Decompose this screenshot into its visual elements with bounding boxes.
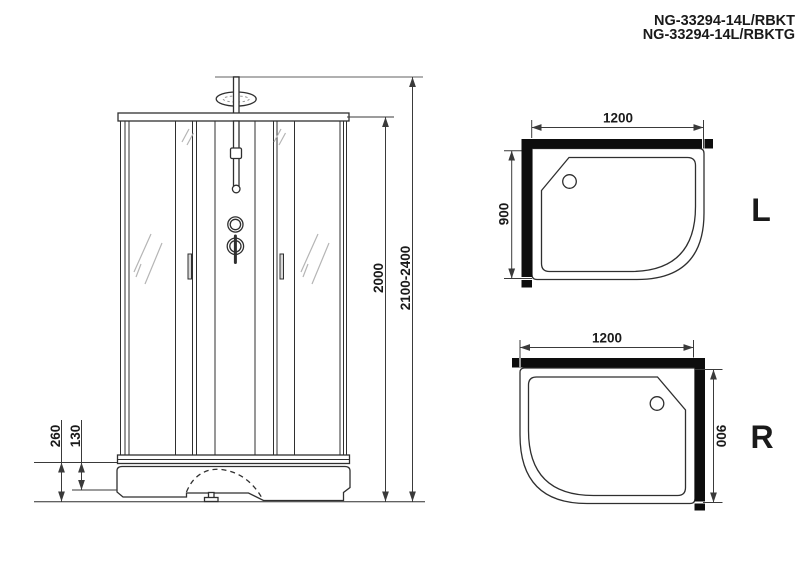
technical-drawing-page: NG-33294-14L/RBKT NG-33294-14L/RBKTG (0, 0, 800, 566)
cabin-bottom-frame (118, 455, 350, 464)
cabin-top-frame (118, 113, 349, 121)
mixer-lever-icon (227, 236, 243, 263)
drain-foot-icon (205, 493, 219, 502)
dim-base-height: 260 (48, 425, 63, 448)
shower-head-icon (216, 77, 256, 114)
tray-inner-r (529, 377, 686, 496)
tray-inner-l (542, 158, 696, 272)
drain-icon-l (563, 175, 577, 189)
door-handle-left (188, 254, 192, 279)
shower-cabin-drawing: NG-33294-14L/RBKT NG-33294-14L/RBKTG (0, 0, 800, 566)
front-view (34, 77, 425, 502)
view-label-r: R (750, 419, 773, 455)
dim-depth-r: 900 (714, 425, 729, 448)
title-block: NG-33294-14L/RBKT NG-33294-14L/RBKTG (643, 13, 795, 43)
mixer-knob-icon (228, 217, 243, 232)
dim-width-l: 1200 (603, 111, 633, 126)
top-view-l: 1200 900 L (497, 111, 771, 288)
view-label-l: L (751, 192, 771, 228)
front-view-dimensions: 2000 2100-2400 260 130 (34, 77, 413, 502)
shower-tray-base (117, 467, 350, 501)
top-view-r: 1200 900 R (512, 331, 774, 511)
model-number-line2: NG-33294-14L/RBKTG (643, 27, 795, 43)
dim-depth-l: 900 (497, 203, 512, 226)
dim-width-r: 1200 (592, 331, 622, 346)
dim-total-height: 2100-2400 (398, 246, 413, 311)
dim-cabin-height: 2000 (371, 263, 386, 293)
drain-icon-r (650, 397, 664, 411)
door-handle-right (280, 254, 284, 279)
dim-tray-height: 130 (68, 425, 83, 448)
shower-rail-icon (231, 121, 242, 193)
